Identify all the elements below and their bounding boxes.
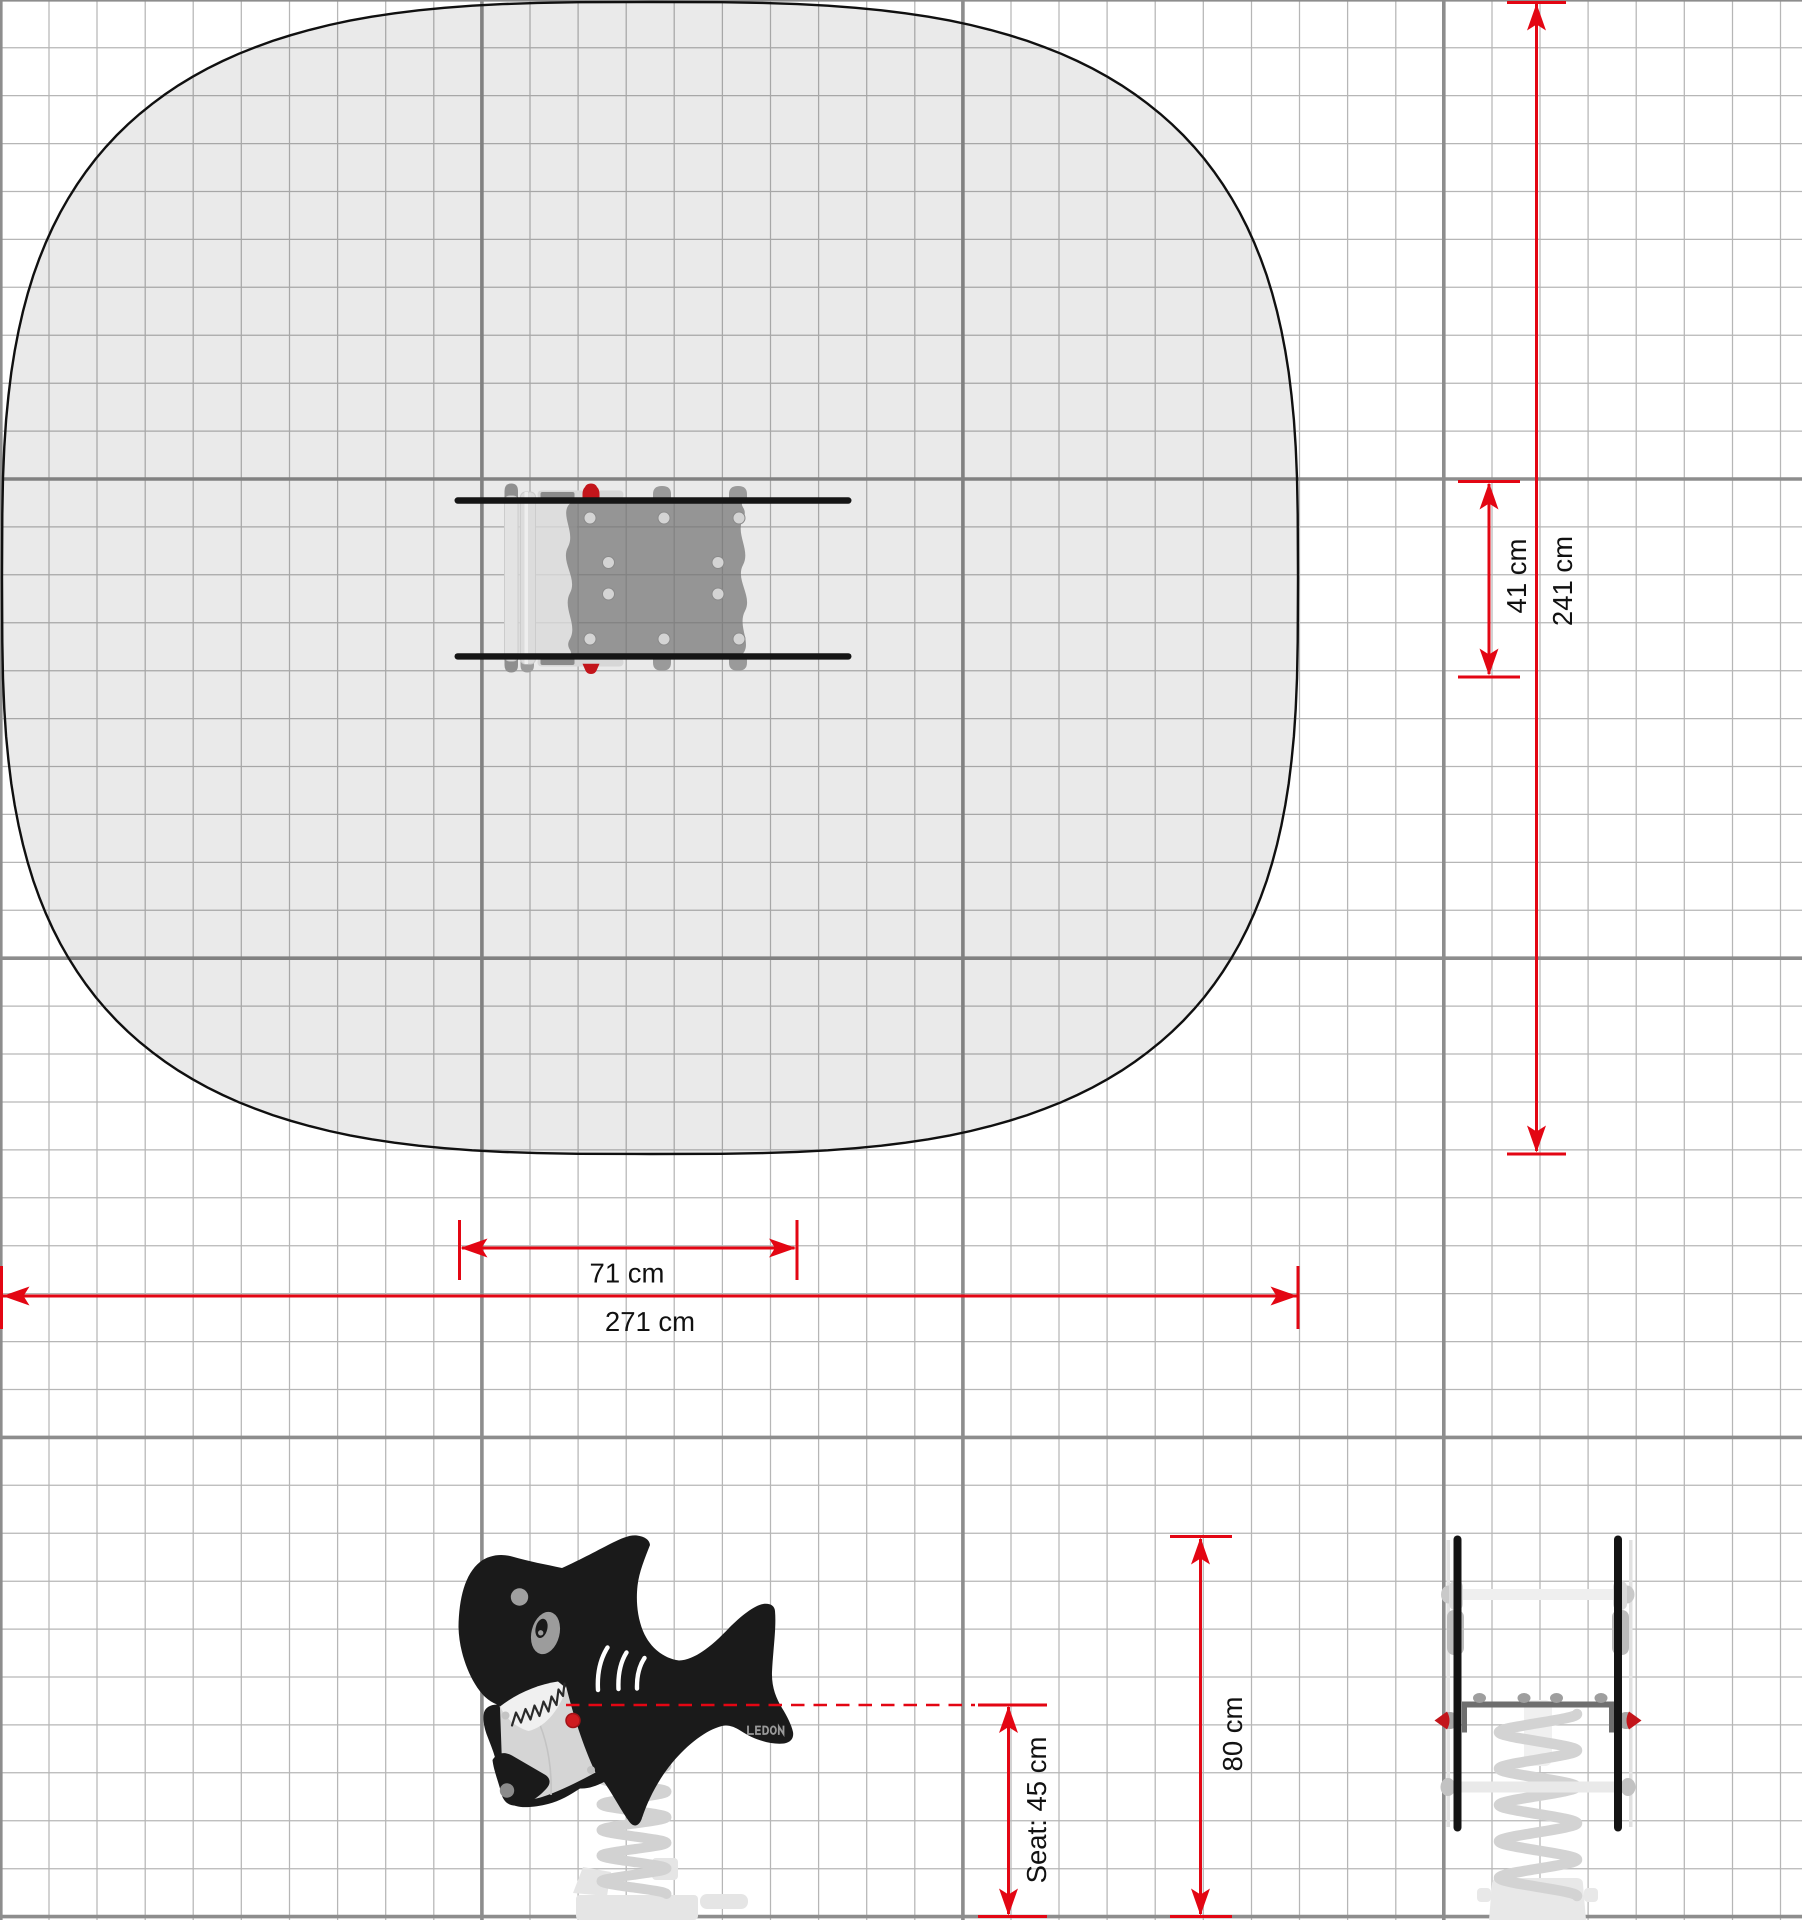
svg-text:241 cm: 241 cm xyxy=(1547,536,1578,626)
svg-text:Seat: 45 cm: Seat: 45 cm xyxy=(1021,1737,1052,1884)
svg-text:41 cm: 41 cm xyxy=(1501,539,1532,614)
svg-text:80 cm: 80 cm xyxy=(1217,1697,1248,1772)
svg-text:271 cm: 271 cm xyxy=(605,1306,695,1337)
svg-text:71 cm: 71 cm xyxy=(590,1258,665,1289)
